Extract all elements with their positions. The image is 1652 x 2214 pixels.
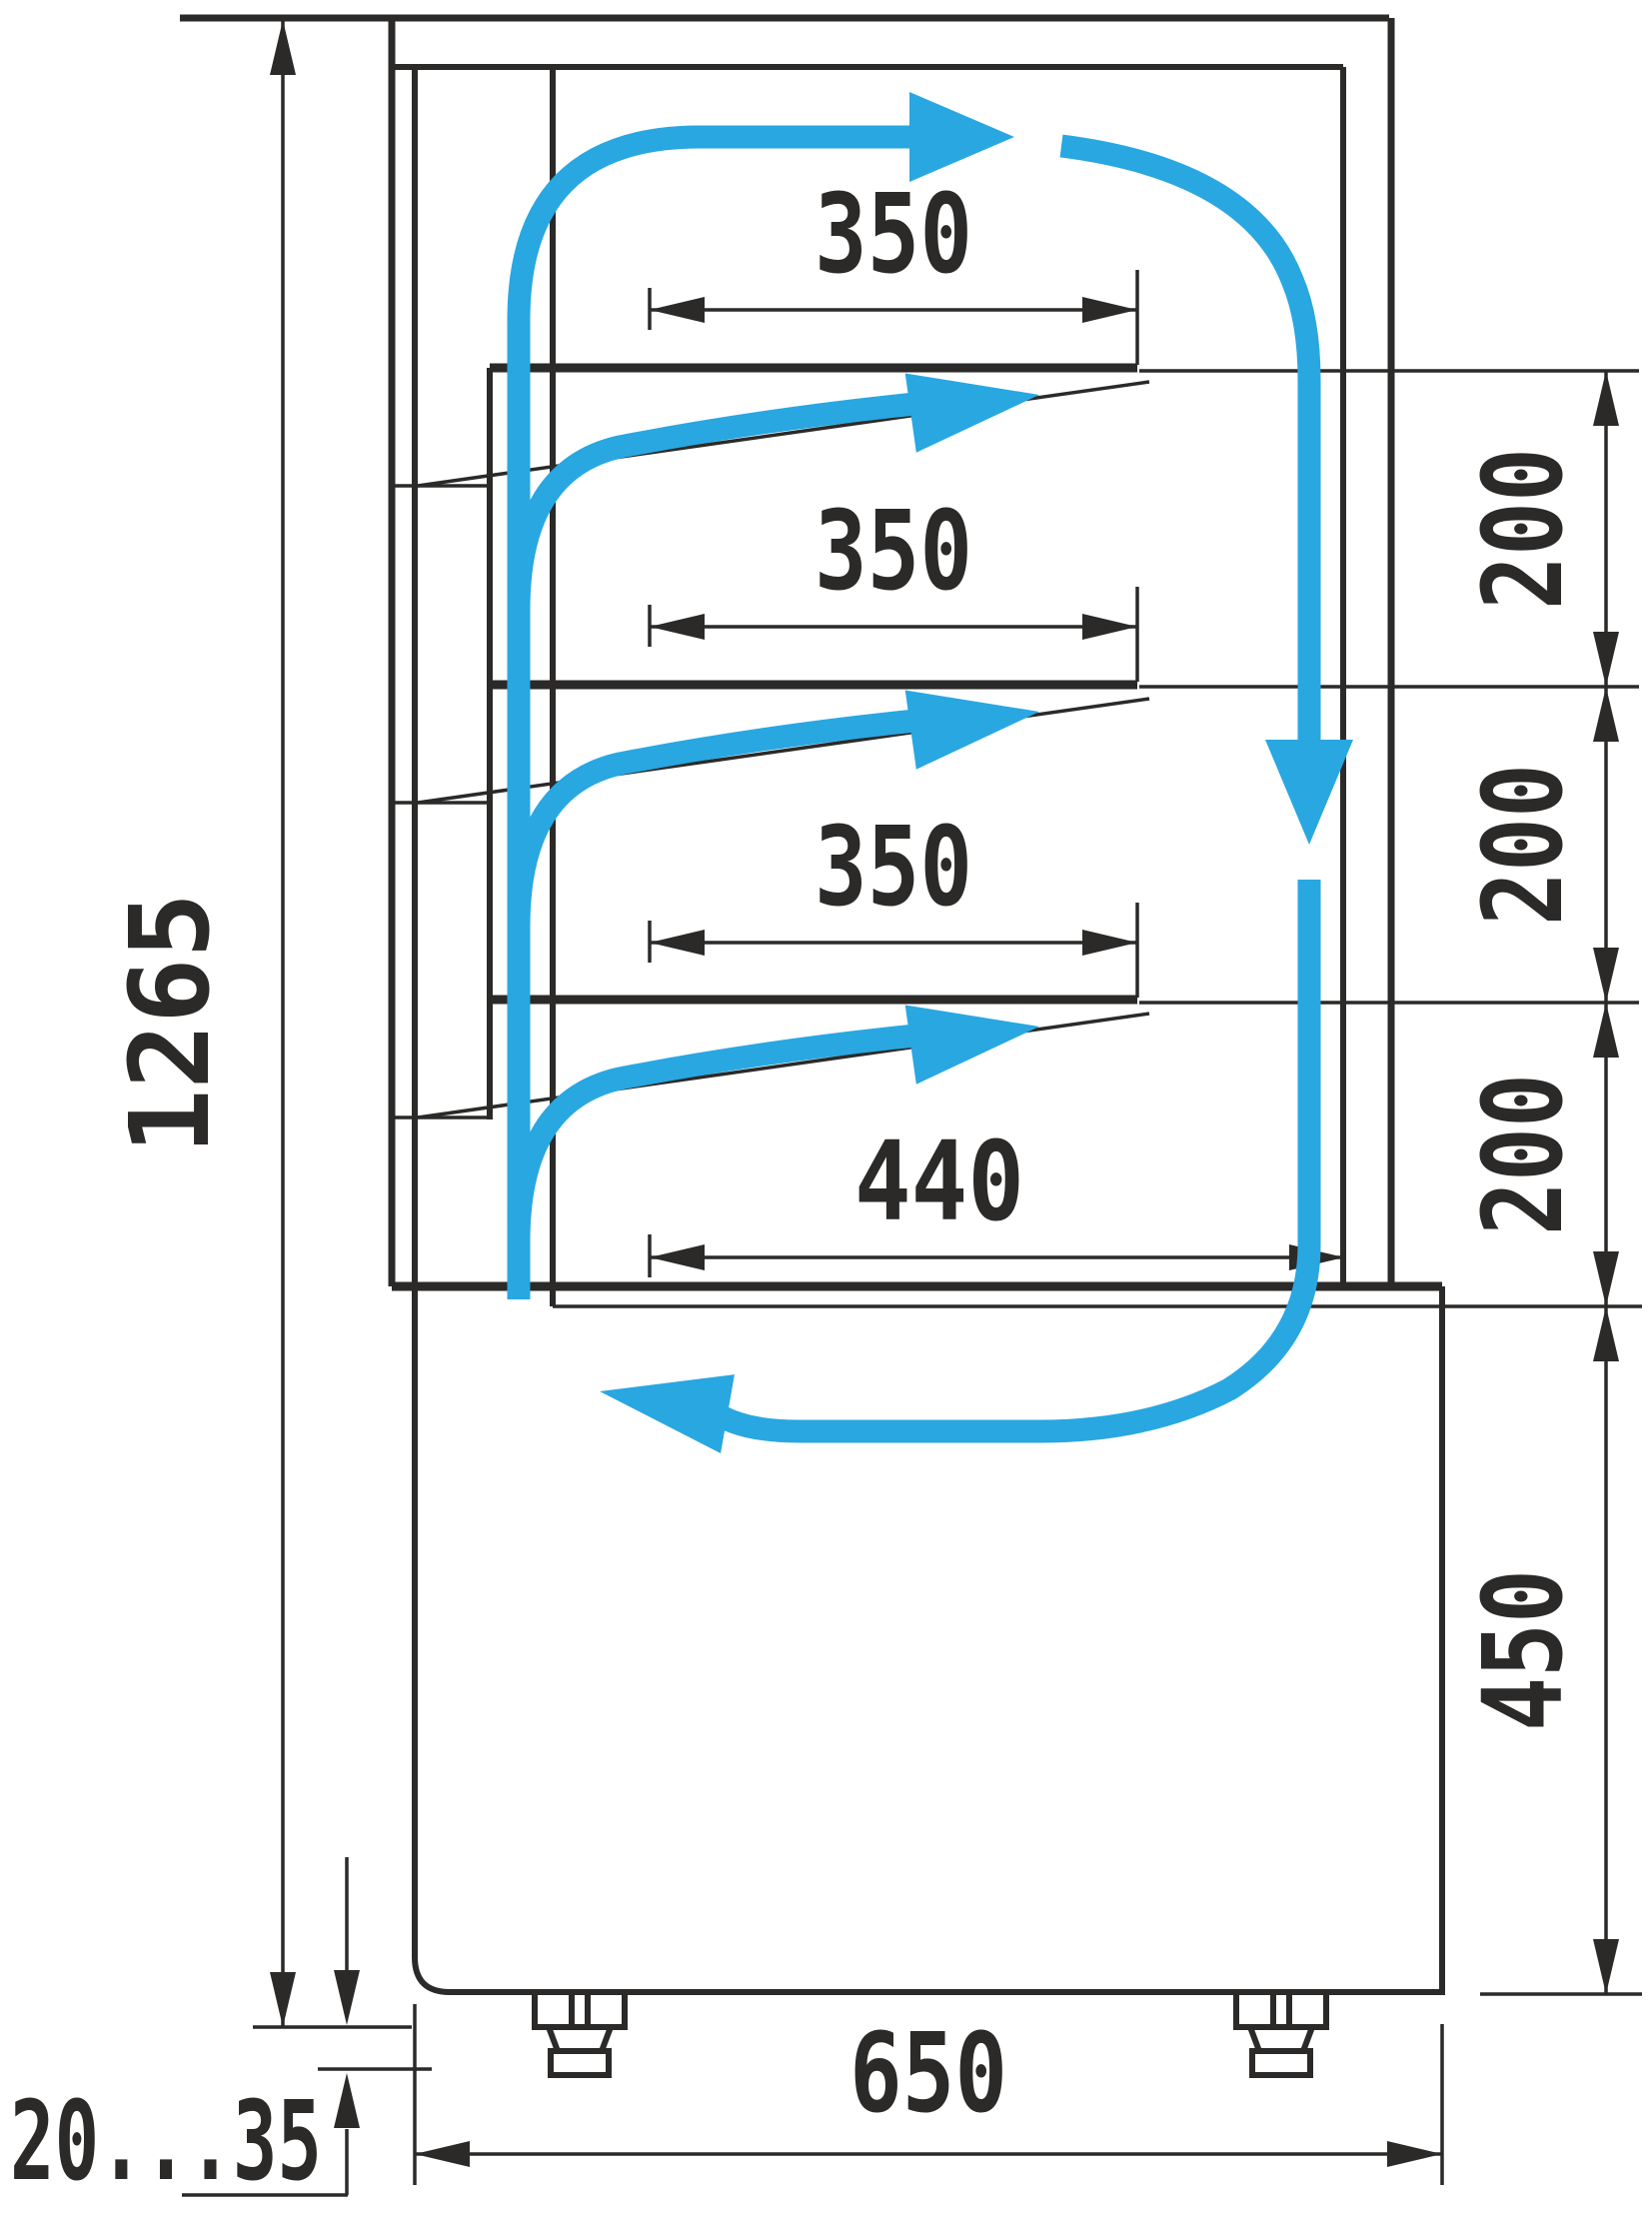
label-foot-adjust-range: 20...35 (10, 2077, 322, 2205)
right-foot-plate (1252, 2051, 1310, 2075)
arrow-350a-left-icon (650, 297, 705, 323)
arrow-350c-right-icon (1082, 930, 1137, 956)
arrow-350c-left-icon (650, 930, 705, 956)
case-outline (180, 18, 1391, 1286)
airflow-front-descend (1061, 146, 1309, 740)
left-foot-cone (549, 2027, 611, 2051)
arrow-1265-down-icon (270, 1972, 296, 2027)
arrow-chain-1003-down-icon (1593, 948, 1619, 1003)
arrow-1265-up-icon (270, 20, 296, 75)
arrow-chain-1307-up-icon (1593, 1306, 1619, 1361)
arrow-350a-right-icon (1082, 297, 1137, 323)
airflow-return-arrow-icon (593, 1352, 735, 1453)
airflow-top-arrow-icon (909, 92, 1014, 182)
airflow-down-arrow-icon (1265, 740, 1353, 845)
right-foot-bracket (1236, 1992, 1326, 2027)
label-base-height: 450 (1459, 1569, 1587, 1731)
dimension-lines (182, 20, 1642, 2195)
arrow-350b-left-icon (650, 614, 705, 640)
arrow-foot-range-up-icon (334, 2073, 360, 2128)
label-shelf-depth-top: 350 (815, 170, 972, 298)
arrow-chain-687-down-icon (1593, 632, 1619, 687)
cabinet-structure (180, 18, 1642, 2195)
display-case-diagram: 350 350 350 440 650 1265 200 200 200 450… (0, 0, 1652, 2214)
label-shelf-depth-middle: 350 (815, 487, 972, 615)
right-foot (1236, 1992, 1326, 2075)
arrow-350b-right-icon (1082, 614, 1137, 640)
label-overall-height: 1265 (106, 893, 234, 1154)
label-bottom-shelf-depth: 440 (854, 1117, 1024, 1245)
arrow-chain-1995-down-icon (1593, 1939, 1619, 1994)
label-shelf-depth-lower: 350 (815, 803, 972, 931)
left-foot (535, 1992, 625, 2075)
arrow-440-left-icon (650, 1244, 705, 1270)
arrow-650-right-icon (1387, 2141, 1442, 2167)
label-base-depth: 650 (849, 2009, 1007, 2137)
label-shelf-gap-3: 200 (1459, 1074, 1587, 1235)
right-foot-screw (1273, 1992, 1289, 2027)
arrow-foot-range-down-icon (334, 1970, 360, 2025)
arrow-650-left-icon (415, 2141, 470, 2167)
label-shelf-gap-1: 200 (1459, 448, 1587, 610)
arrow-chain-687-up-icon (1593, 687, 1619, 742)
right-foot-cone (1250, 2027, 1312, 2051)
dimension-arrowheads (270, 20, 1619, 2167)
dimension-labels: 350 350 350 440 650 1265 200 200 200 450… (10, 170, 1587, 2205)
arrow-chain-1307-down-icon (1593, 1251, 1619, 1306)
arrow-chain-371-up-icon (1593, 371, 1619, 426)
left-foot-plate (551, 2051, 609, 2075)
left-foot-screw (572, 1992, 588, 2027)
drawing-canvas: 350 350 350 440 650 1265 200 200 200 450… (0, 0, 1652, 2214)
airflow-arrowheads (593, 92, 1353, 1453)
arrow-chain-1003-up-icon (1593, 1003, 1619, 1058)
label-shelf-gap-2: 200 (1459, 764, 1587, 926)
left-foot-bracket (535, 1992, 625, 2027)
